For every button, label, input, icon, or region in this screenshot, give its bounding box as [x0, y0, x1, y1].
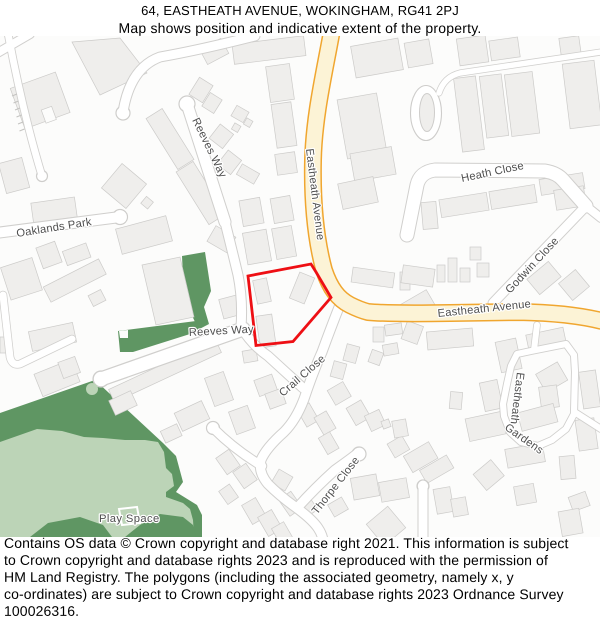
svg-text:Play Space: Play Space [99, 513, 160, 525]
